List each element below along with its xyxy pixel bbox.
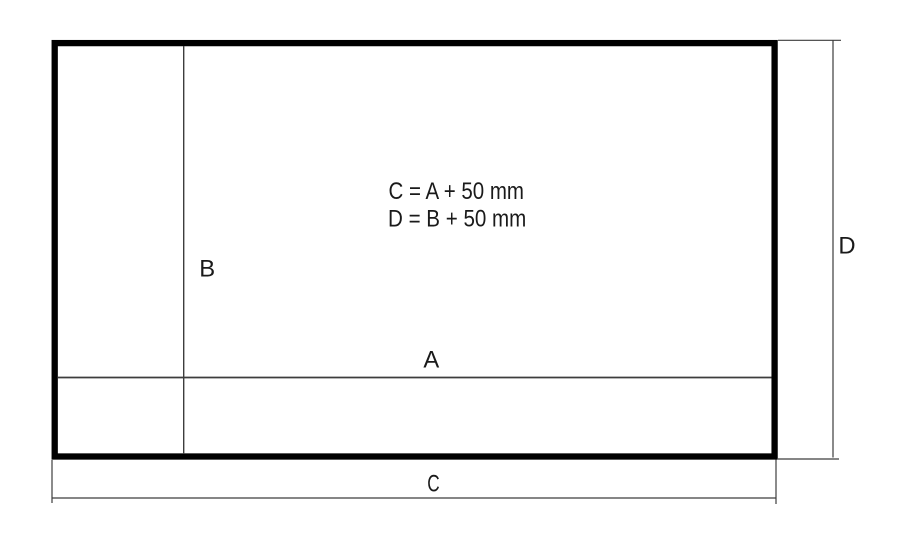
svg-text:C = A + 50 mm: C = A + 50 mm	[389, 178, 525, 205]
svg-text:A: A	[423, 346, 439, 373]
svg-text:D = B + 50 mm: D = B + 50 mm	[388, 206, 526, 233]
svg-text:B: B	[199, 256, 215, 283]
svg-text:D: D	[838, 232, 855, 259]
svg-text:C: C	[427, 471, 439, 498]
